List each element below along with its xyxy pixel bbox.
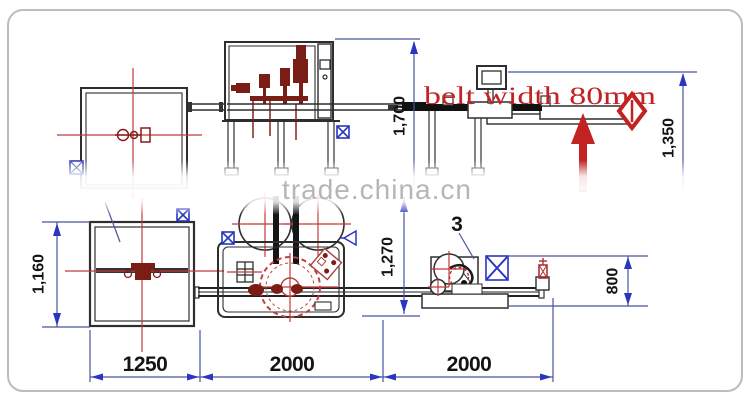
cad-drawing-canvas: 1,700 1,350 1,160 1,270 <box>0 0 752 402</box>
dim-1350-label: 1,350 <box>661 118 678 158</box>
dim-1270-label: 1,270 <box>380 237 397 277</box>
dim-2000-left-label: 2000 <box>270 353 315 376</box>
labeler-base <box>422 294 508 308</box>
dim-1160-label: 1,160 <box>31 254 48 294</box>
part-number-label: 3 <box>451 213 463 236</box>
registration-mark-icon <box>486 256 508 280</box>
watermark-text: trade.china.cn <box>282 174 472 205</box>
dim-1250-label: 1250 <box>123 353 168 376</box>
registration-mark-icon <box>337 126 349 138</box>
dim-1700-label: 1,700 <box>392 96 409 136</box>
machine-layout-drawing: 1,700 1,350 1,160 1,270 <box>0 0 752 402</box>
registration-mark-icon <box>222 232 234 244</box>
dim-2000-right-label: 2000 <box>447 353 492 376</box>
dim-800-label: 800 <box>605 268 622 295</box>
